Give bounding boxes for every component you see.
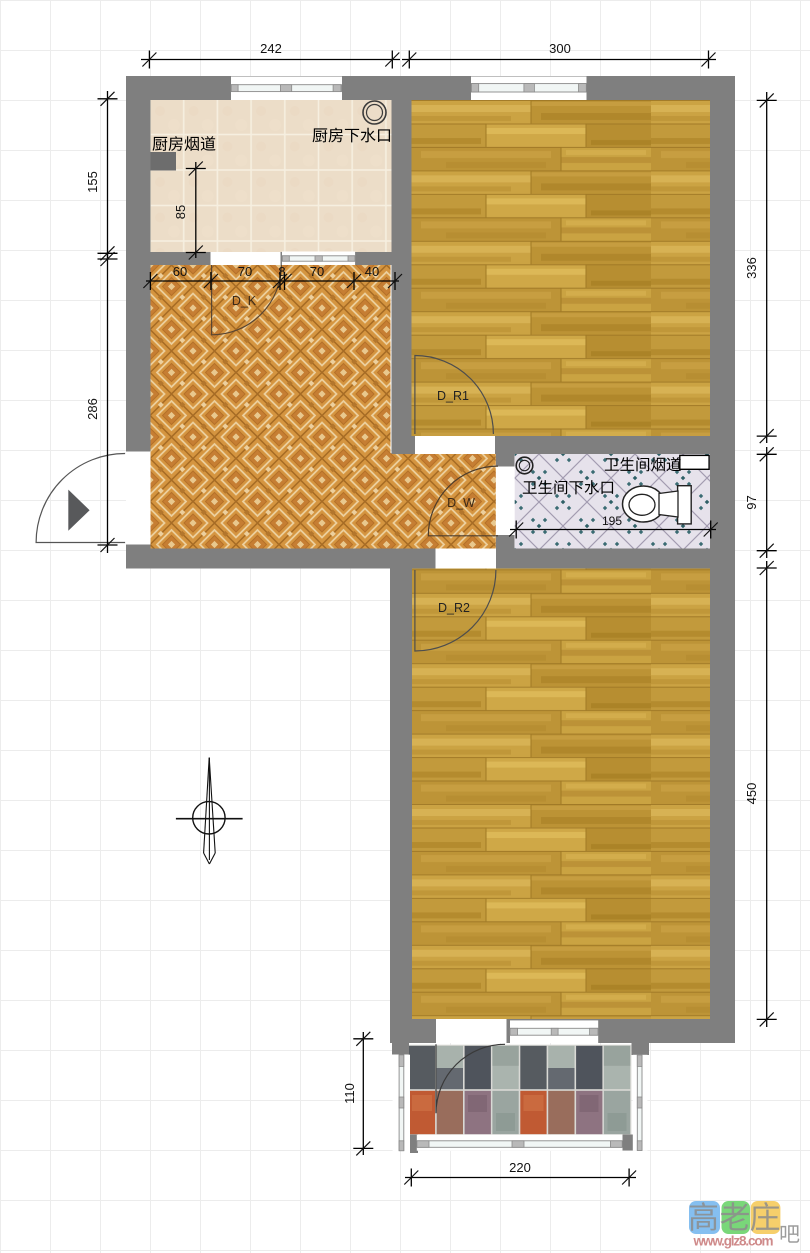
svg-text:D_R1: D_R1 bbox=[437, 389, 469, 403]
svg-text:242: 242 bbox=[260, 41, 282, 56]
svg-text:D_W: D_W bbox=[447, 496, 475, 510]
svg-text:450: 450 bbox=[744, 783, 759, 805]
svg-text:110: 110 bbox=[342, 1083, 357, 1104]
svg-text:www.glz8.com: www.glz8.com bbox=[693, 1234, 774, 1249]
svg-text:70: 70 bbox=[238, 264, 252, 279]
svg-text:70: 70 bbox=[310, 264, 324, 279]
svg-text:300: 300 bbox=[549, 41, 571, 56]
svg-text:85: 85 bbox=[173, 205, 188, 219]
svg-text:336: 336 bbox=[744, 257, 759, 279]
svg-text:D_K: D_K bbox=[232, 294, 257, 308]
svg-text:155: 155 bbox=[85, 171, 100, 193]
svg-text:97: 97 bbox=[744, 495, 759, 509]
svg-text:40: 40 bbox=[365, 264, 379, 279]
svg-text:195: 195 bbox=[602, 514, 622, 528]
svg-text:60: 60 bbox=[173, 264, 187, 279]
svg-text:220: 220 bbox=[509, 1160, 531, 1175]
svg-text:8: 8 bbox=[278, 264, 285, 279]
svg-text:D_R2: D_R2 bbox=[438, 601, 470, 615]
svg-text:286: 286 bbox=[85, 398, 100, 420]
